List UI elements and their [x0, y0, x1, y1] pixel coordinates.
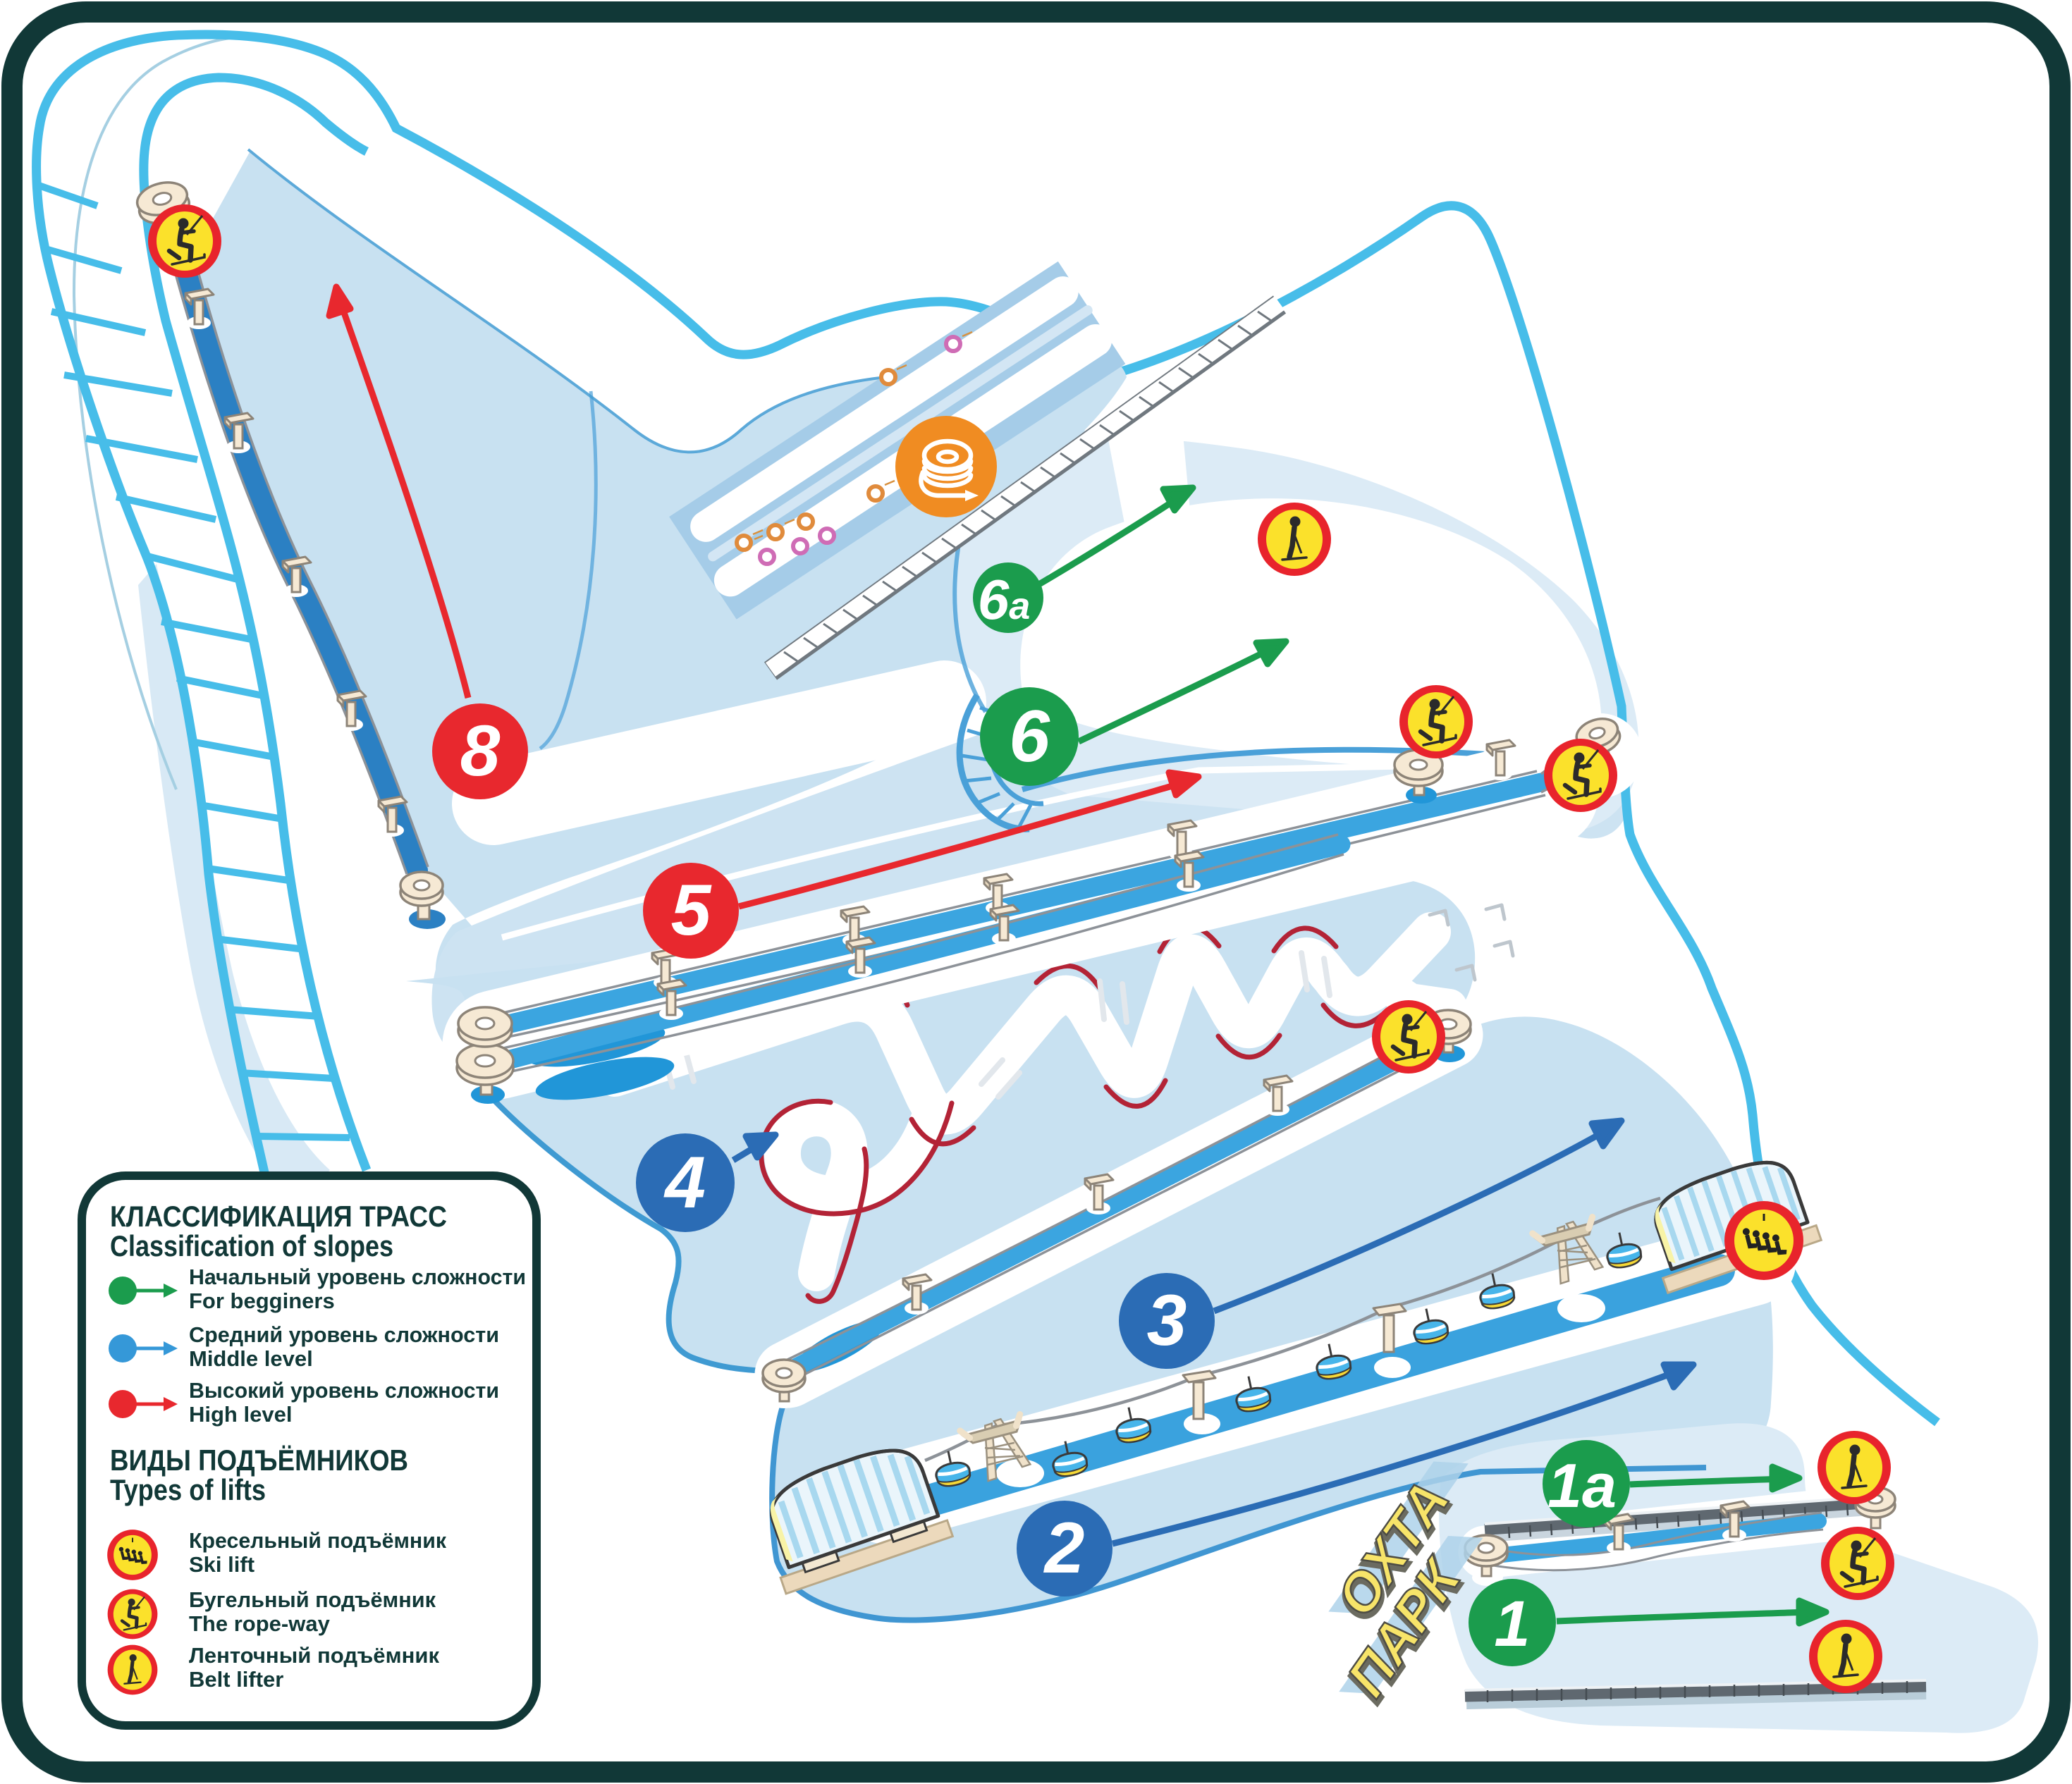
- svg-text:High level: High level: [189, 1402, 292, 1427]
- svg-text:Middle level: Middle level: [189, 1346, 313, 1371]
- svg-text:Высокий уровень сложности: Высокий уровень сложности: [189, 1378, 499, 1403]
- svg-text:3: 3: [1147, 1280, 1187, 1360]
- svg-text:The rope-way: The rope-way: [189, 1611, 331, 1636]
- svg-text:1a: 1a: [1547, 1451, 1617, 1520]
- svg-text:8: 8: [460, 710, 501, 791]
- svg-text:For begginers: For begginers: [189, 1288, 335, 1313]
- svg-text:ВИДЫ ПОДЪЁМНИКОВ: ВИДЫ ПОДЪЁМНИКОВ: [110, 1444, 408, 1477]
- svg-text:Classification of slopes: Classification of slopes: [110, 1229, 393, 1262]
- svg-text:Средний уровень сложности: Средний уровень сложности: [189, 1322, 499, 1347]
- svg-text:Бугельный подъёмник: Бугельный подъёмник: [189, 1587, 436, 1612]
- svg-text:Ski lift: Ski lift: [189, 1552, 255, 1577]
- svg-text:2: 2: [1043, 1508, 1085, 1588]
- svg-text:4: 4: [663, 1142, 706, 1224]
- svg-text:Types of lifts: Types of lifts: [110, 1473, 266, 1506]
- svg-text:Belt lifter: Belt lifter: [189, 1667, 283, 1692]
- svg-text:1: 1: [1494, 1588, 1530, 1660]
- svg-text:5: 5: [671, 870, 712, 950]
- svg-text:Ленточный подъёмник: Ленточный подъёмник: [189, 1643, 439, 1668]
- svg-text:Кресельный подъёмник: Кресельный подъёмник: [189, 1528, 446, 1553]
- svg-text:Начальный уровень сложности: Начальный уровень сложности: [189, 1265, 526, 1289]
- svg-text:6: 6: [1009, 696, 1050, 777]
- svg-text:КЛАССИФИКАЦИЯ ТРАСС: КЛАССИФИКАЦИЯ ТРАСС: [110, 1200, 447, 1233]
